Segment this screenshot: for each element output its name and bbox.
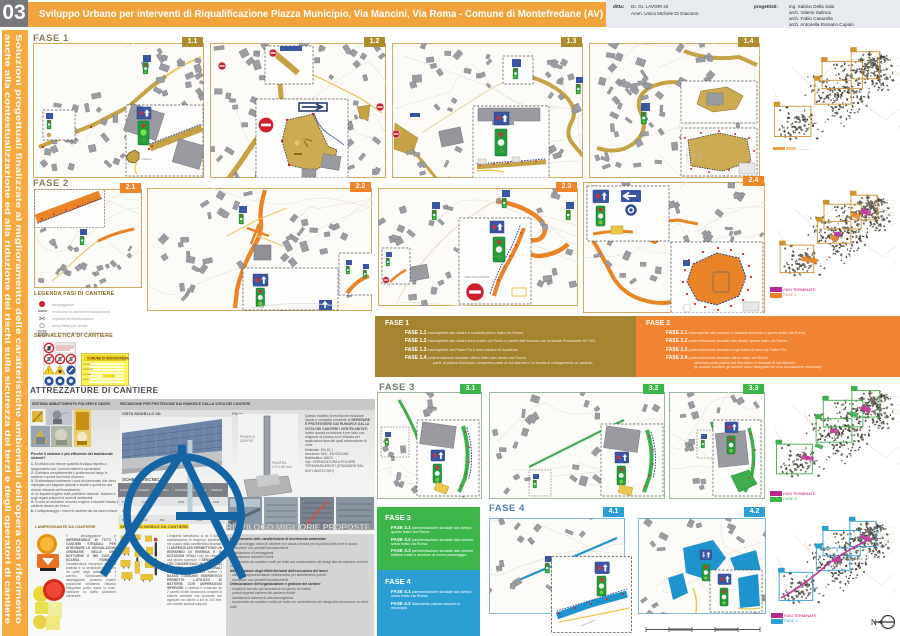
svg-text:DIR.LAV.: DIR.LAV. [83, 373, 92, 376]
svg-text:lampeggiatori: lampeggiatori [52, 303, 74, 307]
svg-text:INIZIO: INIZIO [83, 379, 90, 381]
svg-text:impianto di nebulizzazione: impianto di nebulizzazione [52, 317, 94, 321]
svg-text:idropulitrice per strade: idropulitrice per strade [52, 324, 88, 328]
svg-text:IMPRESA: IMPRESA [83, 368, 93, 371]
svg-text:Montefredane: Montefredane [843, 557, 863, 561]
svg-text:LAVORI: LAVORI [83, 363, 91, 366]
svg-text:COMUNE DI MONTEFREDANE: COMUNE DI MONTEFREDANE [87, 357, 129, 361]
svg-text:170 x 60 mm: 170 x 60 mm [272, 465, 292, 469]
svg-text:FASE 1: FASE 1 [798, 148, 812, 151]
svg-text:anche alla contestualizzazione: anche alla contestualizzazione ed alla r… [3, 34, 13, 624]
svg-text:Soluzioni progettuali finalizz: Soluzioni progettuali finalizzate al mig… [14, 34, 24, 624]
svg-text:VIAB. PROVVISORIA: VIAB. PROVVISORIA [464, 275, 489, 279]
svg-text:rotatoria: rotatoria [142, 157, 152, 161]
svg-text:recinzione in pannelli fonoass: recinzione in pannelli fonoassorbenti [52, 310, 110, 314]
svg-text:!: ! [48, 369, 49, 375]
